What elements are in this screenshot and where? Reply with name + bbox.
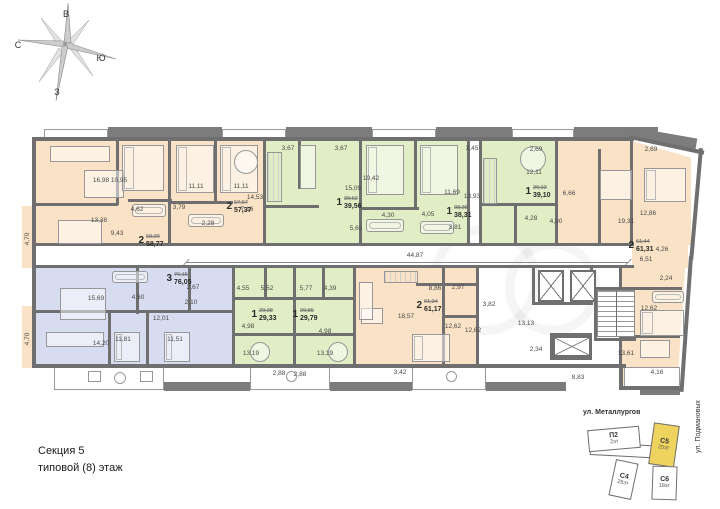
apartment-area: 29,33 <box>259 314 277 321</box>
room-area-label: 6,51 <box>640 257 653 264</box>
apartment-label: 376,1576,05 <box>166 273 191 286</box>
apartment-area-stack: 29,3829,33 <box>259 309 277 322</box>
room-area-label: 11,11 <box>188 184 203 191</box>
room-area-label: 4,30 <box>382 213 395 220</box>
balcony-parapet <box>486 382 566 391</box>
room-area-label: 4,70 <box>25 233 32 246</box>
room-area-label: 14,20 <box>93 341 109 348</box>
room-area-label: 2,28 <box>202 221 215 228</box>
wall-segment <box>414 141 417 209</box>
wall-segment <box>32 137 634 141</box>
apartment-area-stack: 61,3461,17 <box>424 300 442 313</box>
room-area-label: 12,62 <box>465 328 481 335</box>
room-area-label: 11,69 <box>444 190 460 197</box>
room-area-label: 8,83 <box>572 375 585 382</box>
apartment-area: 38,31 <box>454 211 472 218</box>
wall-segment <box>689 148 703 260</box>
wall-segment <box>234 333 354 336</box>
wall-segment <box>416 283 478 286</box>
apartment-area: 61,17 <box>424 305 442 312</box>
furniture-sofa <box>359 282 373 320</box>
tub-basin <box>115 274 145 280</box>
apartment-label: 261,3461,17 <box>416 300 441 313</box>
minimap-building-floors: 18эт <box>659 484 671 490</box>
furniture-bed <box>644 168 686 202</box>
furniture-circle <box>446 371 457 382</box>
apartment-rooms-count: 1 <box>446 207 452 217</box>
room-area-label: 4,16 <box>651 370 664 377</box>
bed-pillow <box>178 147 187 191</box>
room-area-label: 13,61 <box>618 351 634 358</box>
minimap-building-floors: 2эт <box>610 440 619 446</box>
room-area-label: 4,05 <box>422 212 435 219</box>
room-area-label: 2,24 <box>660 276 673 283</box>
room-area-label: 4,98 <box>319 329 332 336</box>
room-area-label: 13,13 <box>518 321 534 328</box>
wall-segment <box>232 268 235 364</box>
room-area-label: 15,09 <box>345 186 361 193</box>
wall-segment <box>514 206 517 244</box>
furniture-chair <box>140 371 153 382</box>
apartment-area: 58,77 <box>146 240 164 247</box>
room-area-label: 5,77 <box>300 286 313 293</box>
apartment-area-stack: 61,4461,31 <box>636 240 654 253</box>
room-area-label: 13,93 <box>464 194 480 201</box>
wall-segment <box>361 207 419 210</box>
room-area-label: 4,55 <box>237 286 250 293</box>
furniture-bed <box>640 310 684 336</box>
room-area-label: 3,67 <box>335 146 348 153</box>
furniture-sofa <box>50 146 110 162</box>
furniture-circle <box>114 372 126 384</box>
apartment-area: 76,05 <box>174 278 192 285</box>
balcony-parapet <box>164 382 250 391</box>
room-area-label: 4,39 <box>324 286 337 293</box>
balcony-parapet <box>330 382 412 391</box>
wall-segment <box>353 268 356 364</box>
furniture-tub <box>366 219 404 232</box>
furniture-table <box>60 288 106 320</box>
room-area-label: 18,57 <box>398 314 414 321</box>
wall-segment <box>234 297 354 300</box>
wall-segment <box>128 199 172 202</box>
wall-segment <box>532 302 593 305</box>
room-area-label: 4,70 <box>25 333 32 346</box>
room-area-label: 3,79 <box>173 205 186 212</box>
apartment-label: 138,3838,31 <box>446 206 471 219</box>
room-area-label: 10,42 <box>363 176 379 183</box>
apartment-rooms-count: 1 <box>292 310 298 320</box>
furniture-table <box>600 170 632 200</box>
apartment-area-stack: 39,6239,56 <box>344 197 362 210</box>
apartment-rooms-count: 2 <box>416 301 422 311</box>
apartment-label: 261,4461,31 <box>628 240 653 253</box>
furniture-bed <box>122 145 164 191</box>
apartment-area: 29,79 <box>300 314 318 321</box>
wall-segment <box>478 364 626 368</box>
section-title: Секция 5 <box>38 445 84 457</box>
minimap-building-floors: 25эт <box>617 480 629 488</box>
room-area-label: 3,67 <box>282 146 295 153</box>
floor-title: типовой (8) этаж <box>38 462 123 474</box>
corridor-dimension-label: 44,87 <box>407 253 423 260</box>
apartment-area: 57,37 <box>234 206 252 213</box>
apartment-label: 139,1339,10 <box>525 186 550 199</box>
room-area-label: 3,82 <box>483 302 496 309</box>
wall-segment <box>34 265 634 268</box>
room-area-label: 12,11 <box>526 170 542 177</box>
wall-segment <box>32 137 36 368</box>
apartment-rooms-count: 2 <box>138 236 144 246</box>
wall-segment <box>594 338 636 341</box>
furniture-counter <box>267 152 282 202</box>
elevator-shaft-icon <box>538 270 564 302</box>
room-area-label: 15,69 <box>88 296 104 303</box>
room-area-label: 16,98 <box>93 178 109 185</box>
apartment-rooms-count: 1 <box>336 198 342 208</box>
room-area-label: 4,90 <box>550 219 563 226</box>
wall-segment <box>214 141 217 201</box>
apartment-area-stack: 29,8529,79 <box>300 309 318 322</box>
wall-segment <box>550 357 592 360</box>
furniture-bed <box>420 145 458 195</box>
room-area-label: 9,43 <box>111 231 124 238</box>
apartment-label: 139,6239,56 <box>336 197 361 210</box>
furniture-counter <box>483 158 497 204</box>
apartment-area: 61,31 <box>636 245 654 252</box>
street-label-top: ул. Металлургов <box>583 409 640 416</box>
apartment-label: 129,8529,79 <box>292 309 317 322</box>
wall-segment <box>168 141 171 243</box>
floorplan-image: В С Ю З 16,9810,9511,1111,1114,5313,389,… <box>0 0 720 509</box>
apartment-label: 258,3958,77 <box>138 235 163 248</box>
corridor-dimension-line <box>186 262 628 263</box>
room-area-label: 12,01 <box>153 316 169 323</box>
apartment-area: 39,56 <box>344 202 362 209</box>
bed-pillow <box>222 147 231 191</box>
minimap-building-с6: С618эт <box>651 466 677 501</box>
room-area-label: 12,86 <box>640 211 656 218</box>
furniture-chair <box>88 371 101 382</box>
room-area-label: 12,62 <box>641 306 657 313</box>
wall-segment <box>146 313 149 364</box>
wall-segment <box>34 243 634 246</box>
apartment-area-stack: 57,5757,37 <box>234 201 252 214</box>
room-area-label: 2,97 <box>452 285 465 292</box>
furniture-bed <box>412 334 450 362</box>
minimap-building-с4: С425эт <box>608 459 638 500</box>
wall-segment <box>555 141 558 243</box>
room-area-label: 2,69 <box>645 147 658 154</box>
apartment-area-stack: 39,1339,10 <box>533 186 551 199</box>
wall-segment <box>322 268 325 299</box>
furniture-desk <box>640 340 670 358</box>
room-area-label: 10,95 <box>111 178 127 185</box>
bed-pillow <box>414 336 423 360</box>
room-area-label: 11,51 <box>167 337 183 344</box>
room-area-label: 2,34 <box>530 347 543 354</box>
bed-pillow <box>422 147 431 193</box>
minimap-building-с5: С525эт <box>648 422 680 467</box>
room-area-label: 2,69 <box>530 147 543 154</box>
room-area-label: 4,62 <box>131 207 144 214</box>
room-area-label: 3,81 <box>449 225 462 232</box>
room-area-label: 19,31 <box>618 219 634 226</box>
room-area-label: 4,98 <box>242 324 255 331</box>
room-area-label: 2,10 <box>185 300 198 307</box>
apartment-area-stack: 38,3838,31 <box>454 206 472 219</box>
wall-segment <box>32 364 482 368</box>
apartment-rooms-count: 2 <box>226 202 232 212</box>
room-area-label: 5,52 <box>261 286 274 293</box>
bed-pillow <box>368 147 377 193</box>
room-area-label: 2,88 <box>294 372 307 379</box>
wall-segment <box>532 268 535 305</box>
wall-segment <box>108 313 111 364</box>
apartment-label: 257,5757,37 <box>226 201 251 214</box>
room-area-label: 3,42 <box>394 370 407 377</box>
room-area-label: 4,60 <box>132 295 145 302</box>
room-area-label: 13,19 <box>243 351 259 358</box>
room-area-label: 4,26 <box>656 247 669 254</box>
staircase-icon <box>597 290 635 337</box>
minimap-building-п2: П22эт <box>587 426 641 452</box>
apartment-area: 39,10 <box>533 191 551 198</box>
room-area-label: 2,67 <box>187 285 200 292</box>
room-area-label: 3,45 <box>466 146 479 153</box>
staircase-divider <box>616 291 617 336</box>
wall-segment <box>264 268 267 299</box>
apartment-area-stack: 76,1576,05 <box>174 273 192 286</box>
apartment-label: 129,3829,33 <box>251 309 276 322</box>
furniture-counter <box>384 271 418 283</box>
apartment-rooms-count: 1 <box>525 187 531 197</box>
furniture-circle <box>234 150 258 174</box>
room-area-label: 6,66 <box>563 191 576 198</box>
elevator-shaft-icon <box>570 270 596 302</box>
room-area-label: 4,28 <box>525 216 538 223</box>
wall-segment <box>619 386 679 390</box>
tub-basin <box>423 224 451 231</box>
wall-segment <box>265 205 319 208</box>
tub-basin <box>655 294 681 300</box>
tub-basin <box>369 222 401 229</box>
bed-pillow <box>642 312 653 334</box>
room-area-label: 13,38 <box>91 218 107 225</box>
wall-segment <box>442 315 478 318</box>
room-area-label: 11,11 <box>233 184 248 191</box>
furniture-tub <box>112 271 148 283</box>
apartment-rooms-count: 2 <box>628 241 634 251</box>
room-area-label: 8,86 <box>429 286 442 293</box>
room-area-label: 13,19 <box>317 351 333 358</box>
room-area-label: 12,62 <box>445 324 461 331</box>
furniture-bed <box>366 145 404 195</box>
apartment-rooms-count: 3 <box>166 274 172 284</box>
elevator-shaft-icon <box>553 336 591 357</box>
bed-pillow <box>646 170 656 200</box>
apartment-rooms-count: 1 <box>251 310 257 320</box>
street-label-right: ул. Подмановых <box>695 400 702 453</box>
room-area-label: 11,81 <box>115 337 131 344</box>
apartment-area-stack: 58,3958,77 <box>146 235 164 248</box>
wall-segment <box>34 203 118 206</box>
wall-segment <box>263 141 266 243</box>
minimap-building-floors: 25эт <box>657 445 669 452</box>
furniture-tub <box>652 291 684 303</box>
room-area-label: 5,65 <box>350 226 363 233</box>
location-minimap: ул. Металлургов ул. Подмановых П22этС425… <box>555 398 720 509</box>
furniture-sofa <box>300 145 316 189</box>
room-area-label: 2,88 <box>273 371 286 378</box>
